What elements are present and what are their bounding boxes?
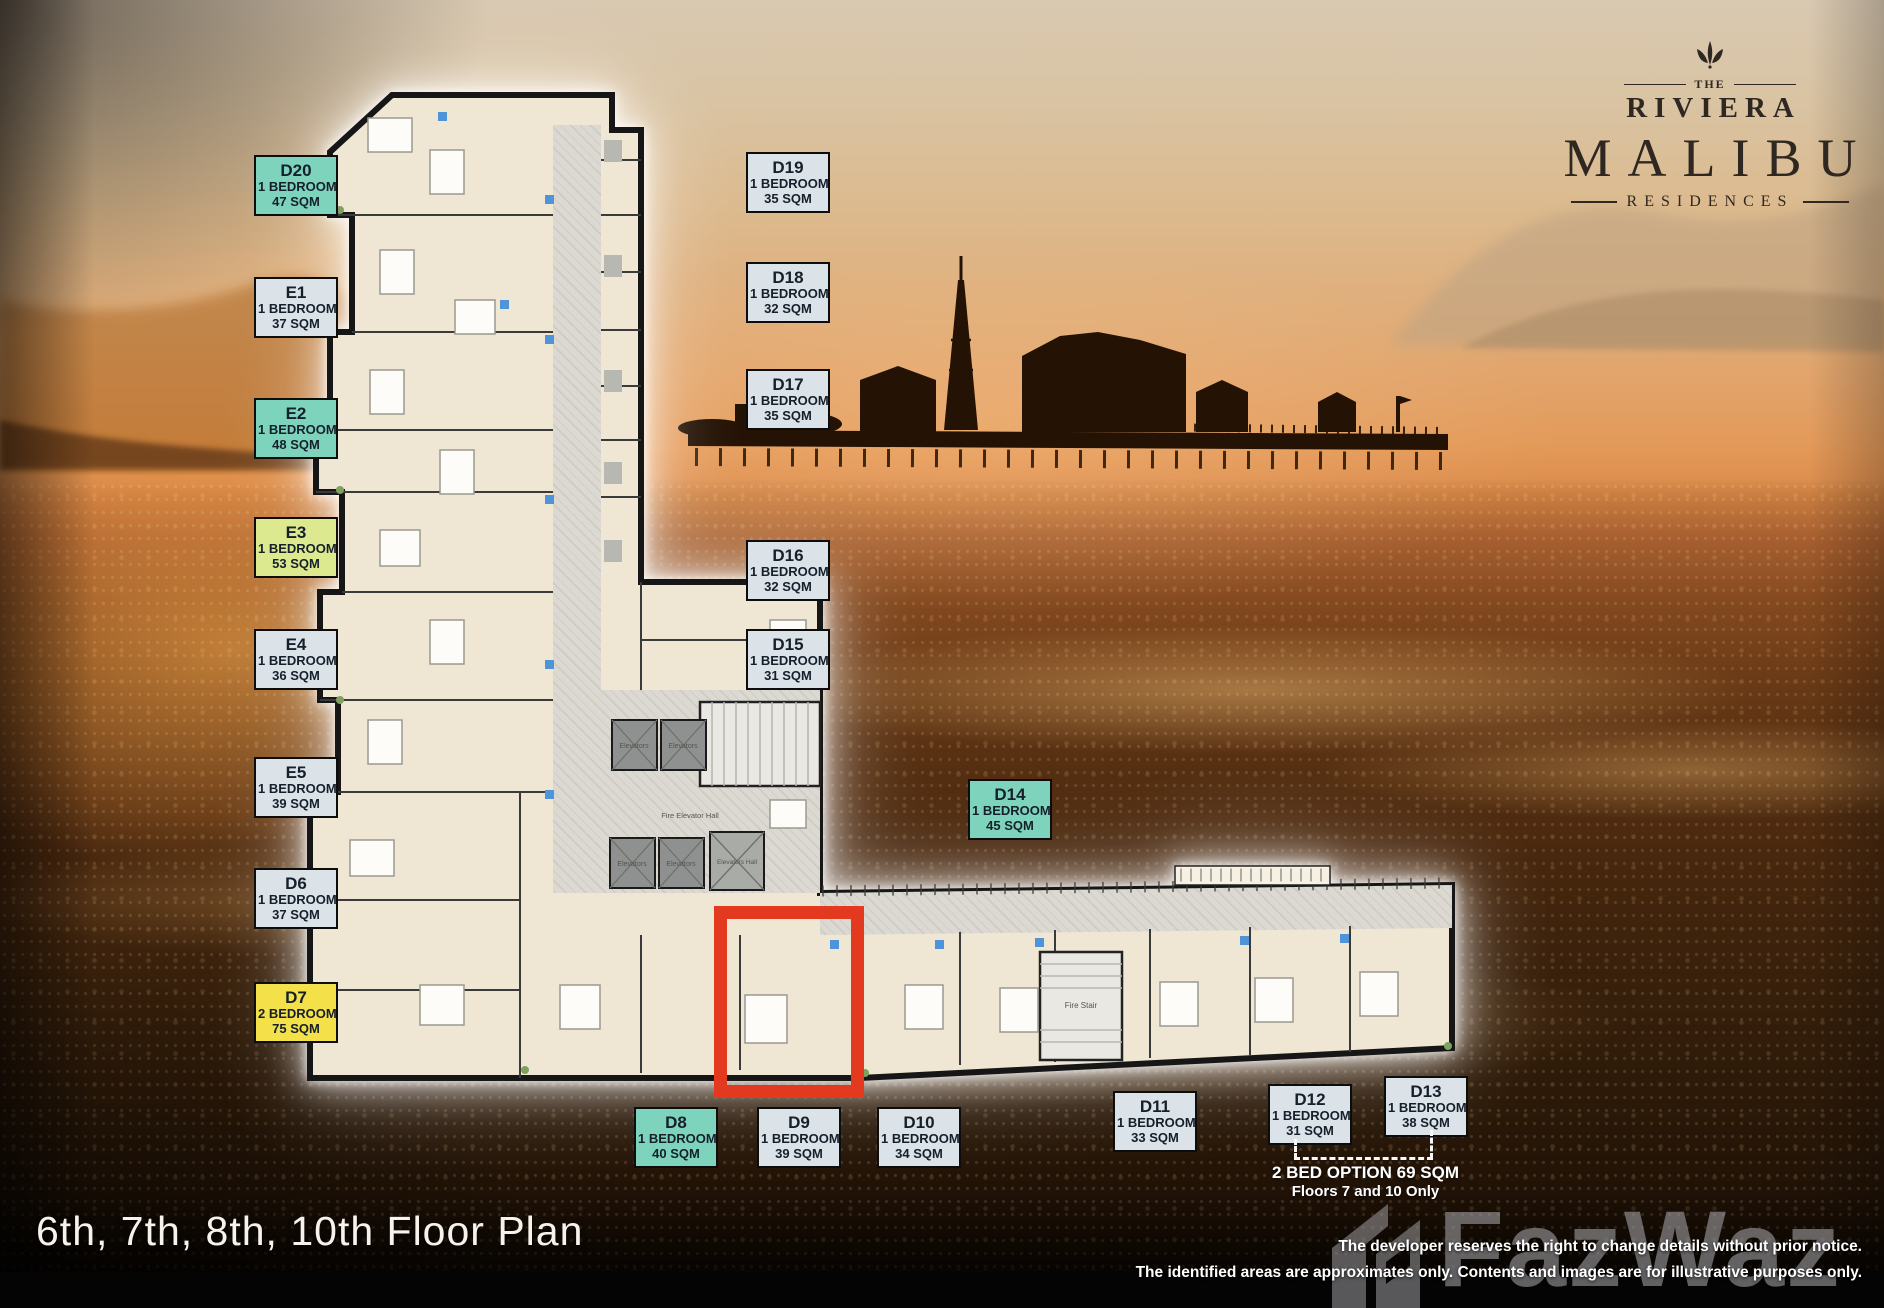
unit-code: D19 (750, 158, 826, 177)
disclaimer: The developer reserves the right to chan… (962, 1234, 1862, 1285)
logo-the-row: THE (1545, 77, 1875, 92)
unit-area: 31 SQM (750, 669, 826, 684)
unit-area: 34 SQM (881, 1147, 957, 1162)
unit-area: 39 SQM (761, 1147, 837, 1162)
unit-label-e5: E51 BEDROOM39 SQM (254, 757, 338, 818)
unit-label-d18: D181 BEDROOM32 SQM (746, 262, 830, 323)
floor-plan-poster: Fire Stair Elevators Elevators Elevators… (0, 0, 1884, 1308)
logo-rule-right (1734, 84, 1796, 86)
fire-stair-room: Fire Stair (1040, 952, 1122, 1060)
unit-area: 53 SQM (258, 557, 334, 572)
unit-code: D8 (638, 1113, 714, 1132)
unit-area: 37 SQM (258, 317, 334, 332)
elevators-label: Elevators (619, 743, 649, 750)
unit-label-d14: D141 BEDROOM45 SQM (968, 779, 1052, 840)
page-title: 6th, 7th, 8th, 10th Floor Plan (36, 1208, 583, 1255)
unit-code: D20 (258, 161, 334, 180)
riviera-malibu-logo: THE RIVIERA MALIBU RESIDENCES (1545, 40, 1875, 211)
logo-malibu: MALIBU (1545, 127, 1875, 189)
unit-code: D13 (1388, 1082, 1464, 1101)
fire-elevator-hall-label: Fire Elevator Hall (661, 811, 719, 820)
unit-label-d9: D91 BEDROOM39 SQM (757, 1107, 841, 1168)
unit-label-d16: D161 BEDROOM32 SQM (746, 540, 830, 601)
unit-area: 47 SQM (258, 195, 334, 210)
unit-type: 1 BEDROOM (258, 423, 334, 438)
unit-code: E4 (258, 635, 334, 654)
bed-option-dash-bottom (1294, 1157, 1433, 1160)
unit-type: 1 BEDROOM (258, 782, 334, 797)
unit-label-e2: E21 BEDROOM48 SQM (254, 398, 338, 459)
bed-option-line1: 2 BED OPTION 69 SQM (1248, 1163, 1483, 1183)
unit-area: 35 SQM (750, 409, 826, 424)
logo-ornament-icon (1690, 40, 1730, 70)
unit-code: D7 (258, 988, 334, 1007)
unit-type: 2 BEDROOM (258, 1007, 334, 1022)
unit-label-e3: E31 BEDROOM53 SQM (254, 517, 338, 578)
unit-type: 1 BEDROOM (761, 1132, 837, 1147)
logo-rule2-right (1803, 201, 1849, 203)
logo-the: THE (1694, 77, 1725, 92)
unit-type: 1 BEDROOM (972, 804, 1048, 819)
disclaimer-line2: The identified areas are approximates on… (962, 1260, 1862, 1286)
unit-area: 38 SQM (1388, 1116, 1464, 1131)
unit-code: D14 (972, 785, 1048, 804)
unit-label-d15: D151 BEDROOM31 SQM (746, 629, 830, 690)
unit-area: 36 SQM (258, 669, 334, 684)
unit-label-e4: E41 BEDROOM36 SQM (254, 629, 338, 690)
bed-option-dash-right (1430, 1130, 1433, 1159)
unit-type: 1 BEDROOM (750, 287, 826, 302)
unit-type: 1 BEDROOM (638, 1132, 714, 1147)
unit-type: 1 BEDROOM (1272, 1109, 1348, 1124)
unit-type: 1 BEDROOM (1117, 1116, 1193, 1131)
unit-area: 32 SQM (750, 302, 826, 317)
unit-type: 1 BEDROOM (750, 565, 826, 580)
elevators-label: Elevators (666, 861, 696, 868)
unit-type: 1 BEDROOM (1388, 1101, 1464, 1116)
unit-label-d10: D101 BEDROOM34 SQM (877, 1107, 961, 1168)
unit-code: D16 (750, 546, 826, 565)
bed-option-dash-left (1294, 1139, 1297, 1159)
unit-code: D6 (258, 874, 334, 893)
unit-code: D15 (750, 635, 826, 654)
unit-type: 1 BEDROOM (258, 893, 334, 908)
unit-label-d12: D121 BEDROOM31 SQM (1268, 1084, 1352, 1145)
logo-residences: RESIDENCES (1627, 193, 1794, 211)
unit-code: E2 (258, 404, 334, 423)
unit-area: 39 SQM (258, 797, 334, 812)
unit-area: 35 SQM (750, 192, 826, 207)
unit-label-d11: D111 BEDROOM33 SQM (1113, 1091, 1197, 1152)
unit-type: 1 BEDROOM (258, 654, 334, 669)
unit-code: E3 (258, 523, 334, 542)
unit-code: E1 (258, 283, 334, 302)
unit-area: 40 SQM (638, 1147, 714, 1162)
unit-label-d7: D72 BEDROOM75 SQM (254, 982, 338, 1043)
unit-area: 37 SQM (258, 908, 334, 923)
unit-type: 1 BEDROOM (881, 1132, 957, 1147)
unit-code: D18 (750, 268, 826, 287)
unit-type: 1 BEDROOM (258, 302, 334, 317)
bed-option-line2: Floors 7 and 10 Only (1248, 1183, 1483, 1200)
unit-code: D11 (1117, 1097, 1193, 1116)
logo-rule2-left (1571, 201, 1617, 203)
unit-type: 1 BEDROOM (750, 177, 826, 192)
unit-label-d8: D81 BEDROOM40 SQM (634, 1107, 718, 1168)
unit-code: D9 (761, 1113, 837, 1132)
unit-type: 1 BEDROOM (750, 394, 826, 409)
unit-area: 75 SQM (258, 1022, 334, 1037)
unit-label-d13: D131 BEDROOM38 SQM (1384, 1076, 1468, 1137)
unit-label-d19: D191 BEDROOM35 SQM (746, 152, 830, 213)
logo-rule-left (1624, 84, 1686, 86)
stairwell (700, 702, 820, 786)
elevators-hall-label: Elevators Hall (717, 859, 758, 866)
unit-code: D10 (881, 1113, 957, 1132)
logo-riviera: RIVIERA (1545, 92, 1875, 125)
elevators-label: Elevators (617, 861, 647, 868)
unit-area: 31 SQM (1272, 1124, 1348, 1139)
fire-stair-label: Fire Stair (1065, 1001, 1098, 1010)
unit-area: 33 SQM (1117, 1131, 1193, 1146)
disclaimer-line1: The developer reserves the right to chan… (962, 1234, 1862, 1260)
unit-code: D12 (1272, 1090, 1348, 1109)
bed-option-note: 2 BED OPTION 69 SQM Floors 7 and 10 Only (1248, 1163, 1483, 1200)
unit-label-d17: D171 BEDROOM35 SQM (746, 369, 830, 430)
unit-label-d6: D61 BEDROOM37 SQM (254, 868, 338, 929)
unit-label-d20: D201 BEDROOM47 SQM (254, 155, 338, 216)
unit-area: 45 SQM (972, 819, 1048, 834)
unit-area: 32 SQM (750, 580, 826, 595)
unit-type: 1 BEDROOM (258, 180, 334, 195)
unit-type: 1 BEDROOM (258, 542, 334, 557)
highlighted-unit-d9-box (714, 906, 864, 1098)
elevators-label: Elevators (668, 743, 698, 750)
unit-code: D17 (750, 375, 826, 394)
unit-label-e1: E11 BEDROOM37 SQM (254, 277, 338, 338)
unit-code: E5 (258, 763, 334, 782)
unit-area: 48 SQM (258, 438, 334, 453)
logo-residences-row: RESIDENCES (1545, 193, 1875, 211)
unit-type: 1 BEDROOM (750, 654, 826, 669)
